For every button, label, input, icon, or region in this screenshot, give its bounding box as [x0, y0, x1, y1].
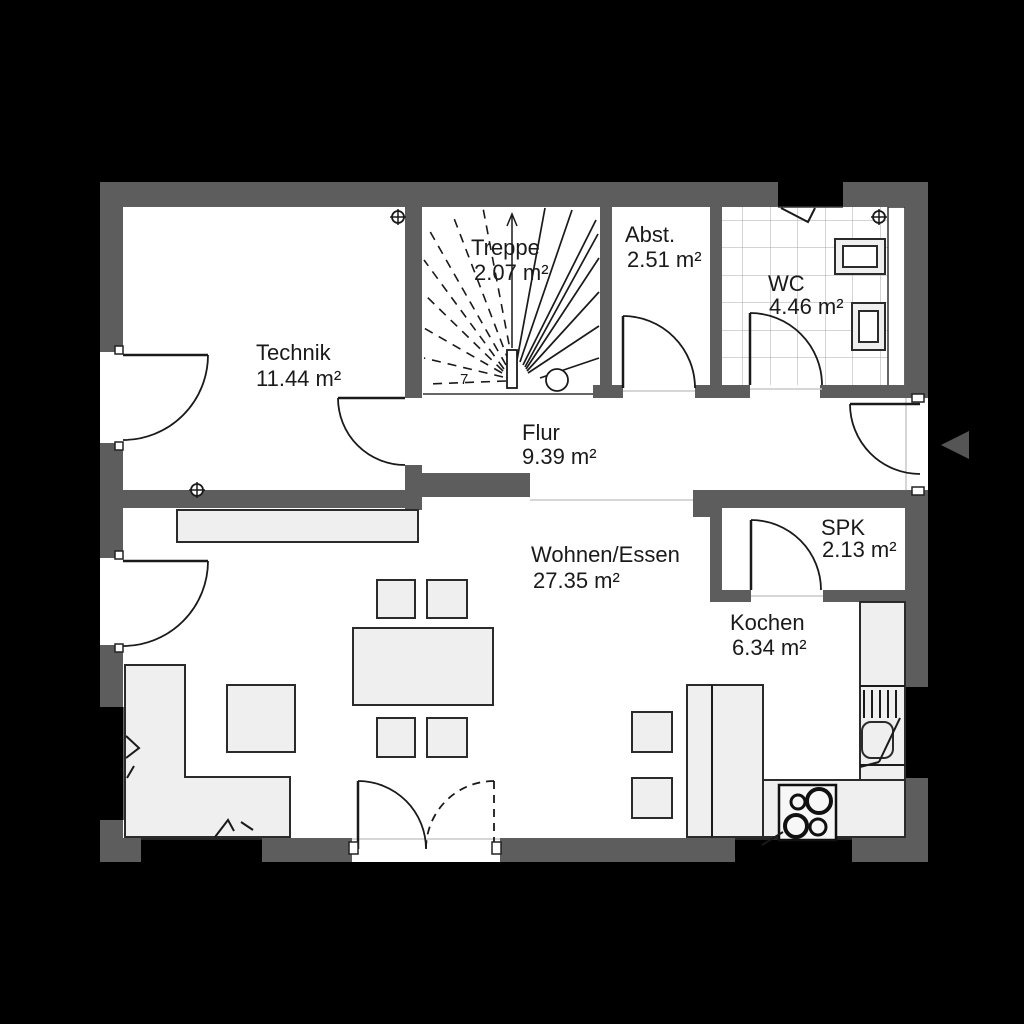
wall-spk-north	[693, 490, 928, 508]
wc-washbasin-bowl	[843, 246, 877, 267]
dining-chair	[427, 718, 467, 757]
wall-left-3	[100, 645, 123, 707]
room-area-abst: 2.51 m²	[627, 247, 702, 272]
wall-spk-south-2	[823, 590, 905, 602]
wall-spk-south-1	[710, 590, 751, 602]
coffee-table	[227, 685, 295, 752]
frame-mark	[115, 346, 123, 354]
wall-bottom-2	[262, 838, 352, 862]
room-name-flur: Flur	[522, 420, 560, 445]
window-bottom-kitchen	[735, 838, 852, 862]
room-area-kochen: 6.34 m²	[732, 635, 807, 660]
room-name-wc: WC	[768, 271, 805, 296]
frame-mark	[912, 394, 924, 402]
kitchen-stool	[632, 712, 672, 752]
window-top-wc	[778, 182, 843, 207]
frame-mark	[349, 842, 358, 854]
wall-flur-north-2	[695, 385, 750, 398]
frame-mark	[912, 487, 924, 495]
kitchen-sink	[862, 722, 893, 758]
wall-treppe-abst-divider	[600, 207, 612, 388]
wall-abst-wc-divider	[710, 207, 722, 388]
wall-right-2	[905, 490, 928, 687]
wall-bottom-3	[500, 838, 735, 862]
dining-chair	[377, 580, 415, 618]
room-area-wohnen-essen: 27.35 m²	[533, 568, 620, 593]
room-area-treppe: 2.07 m²	[474, 260, 549, 285]
frame-mark	[115, 551, 123, 559]
wall-technik-south	[123, 490, 422, 508]
wall-top-left	[100, 182, 778, 207]
wall-flur-north-3	[820, 385, 905, 398]
room-name-kochen: Kochen	[730, 610, 805, 635]
stair-spindle	[507, 350, 517, 388]
wall-flur-southwest	[422, 473, 530, 497]
wall-left-1	[100, 182, 123, 352]
sideboard	[177, 510, 418, 542]
stair-step-number: 7	[460, 371, 468, 388]
frame-mark	[115, 644, 123, 652]
room-area-spk: 2.13 m²	[822, 537, 897, 562]
floor-plan: 7 Technik 11.44 m² Treppe 2.0	[0, 0, 1024, 1024]
frame-mark	[115, 442, 123, 450]
kitchen-island	[687, 685, 763, 837]
room-area-technik: 11.44 m²	[256, 366, 341, 391]
room-name-treppe: Treppe	[471, 235, 540, 260]
wall-right-3	[905, 778, 928, 862]
wall-bottom-1	[100, 838, 141, 862]
room-name-technik: Technik	[256, 340, 332, 365]
room-area-flur: 9.39 m²	[522, 444, 597, 469]
room-name-wohnen-essen: Wohnen/Essen	[531, 542, 680, 567]
room-area-wc: 4.46 m²	[769, 294, 844, 319]
wall-technik-east	[405, 207, 422, 398]
wc-toilet-bowl	[859, 311, 878, 342]
floor-plan-canvas: 7 Technik 11.44 m² Treppe 2.0	[0, 0, 1024, 1024]
wall-spk-north-stub	[693, 508, 712, 517]
wall-left-2	[100, 443, 123, 558]
dining-chair	[427, 580, 467, 618]
stair-newel-post	[546, 369, 568, 391]
dining-chair	[377, 718, 415, 757]
dining-table	[353, 628, 493, 705]
window-right-kitchen	[905, 687, 928, 778]
wall-flur-north-1	[593, 385, 623, 398]
wall-spk-west	[710, 508, 722, 590]
window-left-living	[100, 707, 123, 820]
wall-right-1	[905, 182, 928, 398]
kitchen-stool	[632, 778, 672, 818]
room-name-abst: Abst.	[625, 222, 675, 247]
frame-mark	[492, 842, 501, 854]
window-bottom-living	[141, 838, 262, 862]
